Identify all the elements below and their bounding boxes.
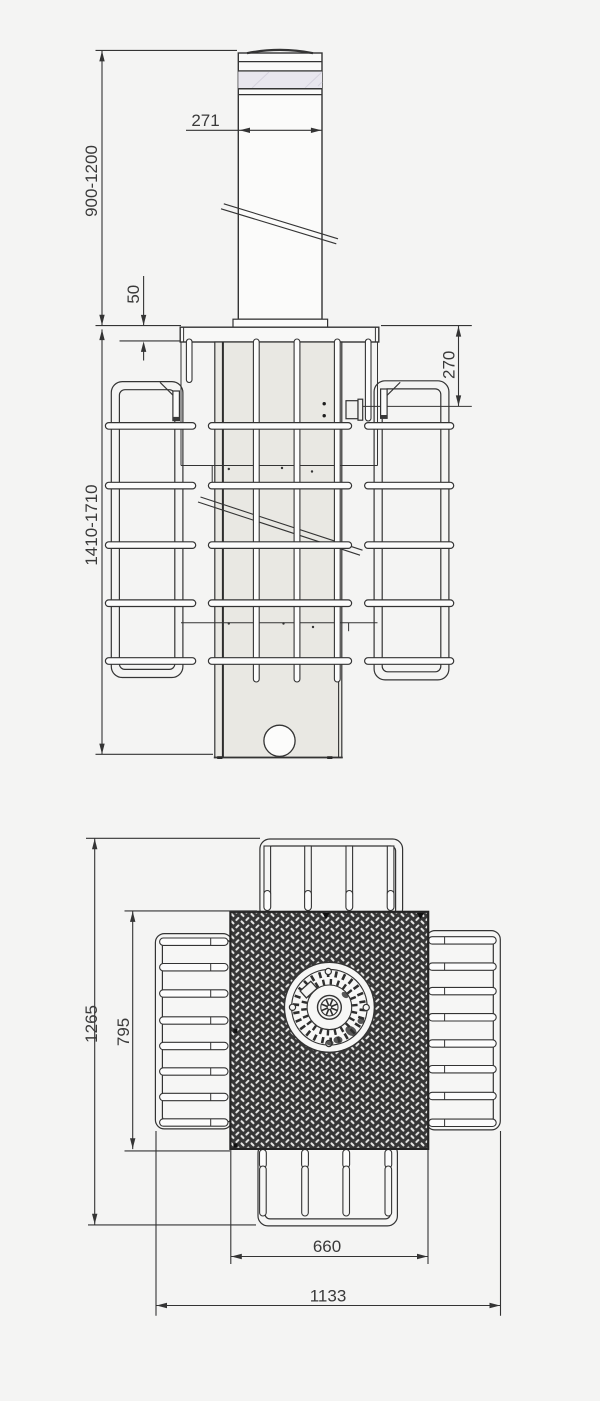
svg-text:900-1200: 900-1200 (82, 145, 101, 217)
svg-text:1265: 1265 (82, 1005, 101, 1043)
svg-text:1410-1710: 1410-1710 (82, 484, 101, 565)
svg-text:270: 270 (440, 351, 459, 379)
svg-text:50: 50 (124, 285, 143, 304)
svg-text:271: 271 (191, 111, 219, 130)
svg-text:1133: 1133 (310, 1286, 347, 1305)
svg-text:660: 660 (313, 1237, 341, 1256)
svg-text:795: 795 (114, 1018, 133, 1046)
